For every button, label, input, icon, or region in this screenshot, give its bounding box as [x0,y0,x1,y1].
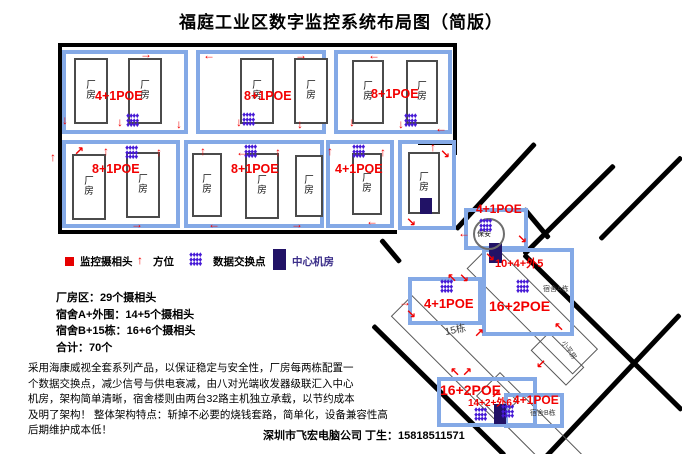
switch-cluster-icon: ♦♦♦♦♦♦♦♦♦♦♦♦ [404,114,416,128]
legend-room-label: 中心机房 [292,257,334,268]
factory-building: 厂房 [294,58,328,124]
switch-cluster-icon: ♦♦♦♦♦♦♦♦♦♦♦♦ [189,253,201,267]
poe-label: 8+1POE [231,163,279,176]
poe-label: 4+1POE [424,297,474,310]
road-line [379,238,402,264]
direction-arrow-icon: ← [435,122,447,134]
machine-room-icon [273,249,286,270]
direction-arrow-icon: → [295,49,307,61]
switch-cluster-icon: ♦♦♦♦♦♦♦♦♦♦♦♦ [352,145,364,159]
direction-arrow-icon: ↖ [447,272,457,284]
direction-arrow-icon: ↗ [74,145,84,157]
direction-arrow-icon: ↑ [430,141,436,153]
stats-line: 宿舍B+15栋：16+6个摄相头 [56,323,195,340]
switch-cluster-icon: ♦♦♦♦♦♦♦♦♦♦♦♦ [242,113,254,127]
direction-arrow-icon: ↑ [380,146,386,158]
direction-arrow-icon: → [291,218,303,230]
direction-arrow-icon: ↘ [440,148,450,160]
poe-label: 8+1POE [371,88,419,101]
compound-wall-right [453,43,457,155]
direction-arrow-icon: ↓ [62,114,68,126]
direction-arrow-icon: ↓ [117,116,123,128]
direction-arrow-icon: ← [236,146,248,158]
direction-arrow-icon: ← [368,49,380,61]
compound-wall-top [58,43,457,47]
legend-direction-label: 方位 [153,257,174,268]
direction-arrow-icon: ↘ [459,272,469,284]
direction-arrow-icon: ← [366,215,378,227]
poe-label: 4+1POE [513,394,559,406]
direction-arrow-icon: ↗ [474,327,484,339]
factory-building: 厂房 [192,153,222,217]
poe-label: 4+1POE [95,90,143,103]
direction-arrow-icon: → [131,218,143,230]
road-line [522,163,616,256]
direction-arrow-icon: ↑ [200,145,206,157]
stats-line: 厂房区：29个摄相头 [56,290,195,307]
stats-line: 合计：70个 [56,340,195,357]
direction-arrow-icon: ↑ [103,145,109,157]
direction-arrow-icon: ↑ [156,146,162,158]
compound-wall-bottom [58,230,397,234]
direction-arrow-icon: ← [208,218,220,230]
poe-label: 16+2POE [489,299,550,313]
poe-label: 8+1POE [244,90,292,103]
direction-arrow-icon: ↑ [50,151,56,163]
building-15-label: 15栋 [444,324,467,338]
machine-room-icon [420,198,432,214]
direction-arrow-icon: ↑ [275,146,281,158]
dorm-b-label: 宿舍B栋 [530,410,556,417]
camera-stats: 厂房区：29个摄相头 宿舍A+外围：14+5个摄相头 宿舍B+15栋：16+6个… [56,290,195,356]
direction-arrow-icon: ↓ [349,116,355,128]
direction-arrow-icon: ↙ [536,358,546,370]
switch-cluster-icon: ♦♦♦♦♦♦♦♦♦♦♦♦ [126,114,138,128]
direction-arrow-icon: ↓ [398,118,404,130]
direction-arrow-icon: ↖ [554,321,564,333]
direction-arrow-icon: ← [203,49,215,61]
camera-icon [65,257,74,266]
direction-arrow-icon: → [140,48,152,60]
switch-cluster-icon: ♦♦♦♦♦♦♦♦♦♦♦♦ [501,405,513,419]
legend-switch-label: 数据交换点 [213,257,266,268]
direction-arrow-icon: ↑ [327,145,333,157]
switch-cluster-icon: ♦♦♦♦♦♦♦♦♦♦♦♦ [125,146,137,160]
direction-arrow-icon: ↓ [236,116,242,128]
switch-cluster-icon: ♦♦♦♦♦♦♦♦♦♦♦♦ [479,219,491,233]
direction-arrow-icon: ↓ [297,118,303,130]
layout-diagram: 福庭工业区数字监控系统布局图（简版） 厂房 厂房 厂房 厂房 厂房 厂房 厂房 … [0,0,682,454]
direction-arrow-icon: ← [458,227,470,239]
poe-label: 4+1POE [476,203,522,215]
factory-building: 厂房 [295,155,323,217]
count-label: 10+4+外5 [495,259,543,270]
poe-label: 4+1POE [335,163,383,176]
legend-camera-label: 监控摄相头 [80,257,133,268]
page-title: 福庭工业区数字监控系统布局图（简版） [0,8,682,33]
direction-arrow-icon: ↘ [406,308,416,320]
poe-label: 8+1POE [92,163,140,176]
switch-cluster-icon: ♦♦♦♦♦♦♦♦♦♦♦♦ [516,280,528,294]
direction-arrow-icon: ↘ [485,251,495,263]
direction-arrow-icon: ↑ [137,254,143,266]
stats-line: 宿舍A+外围：14+5个摄相头 [56,307,195,324]
direction-arrow-icon: ↓ [176,118,182,130]
dorm-a-label: 宿舍A栋 [543,286,569,293]
direction-arrow-icon: ↘ [517,233,527,245]
direction-arrow-icon: ↘ [406,216,416,228]
company-contact: 深圳市飞宏电脑公司 丁生：15818511571 [263,427,465,443]
